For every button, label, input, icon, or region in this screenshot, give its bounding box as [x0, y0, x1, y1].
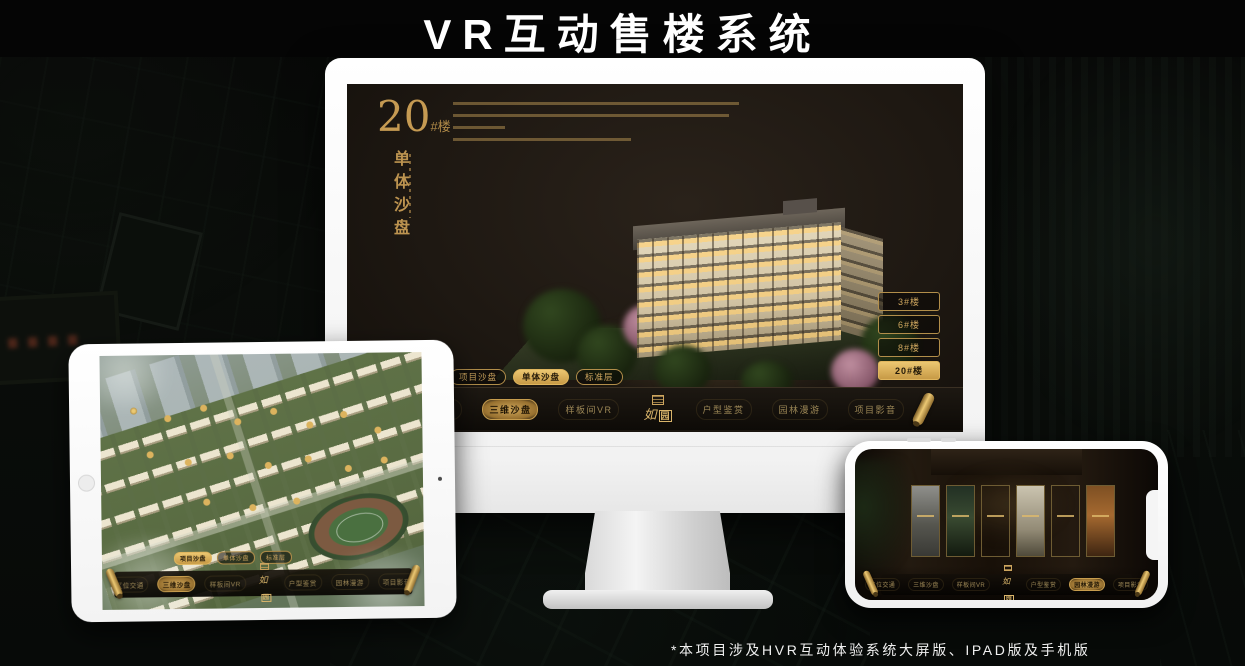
logo-seal-icon — [1004, 565, 1012, 571]
scroll-handle-icon[interactable] — [911, 391, 936, 426]
floor-button-20[interactable]: 20#楼 — [878, 361, 940, 380]
tablet-tab-single-sandtable[interactable]: 单体沙盘 — [217, 551, 255, 564]
building-number: 20 — [377, 92, 430, 141]
tablet-bottom-nav: 区位交通 三维沙盘 样板间VR 如园 户型鉴赏 园林漫游 项目影音 — [114, 568, 412, 598]
building-number-title: 20#楼 — [377, 96, 451, 138]
phone-nav-item-model-room-vr[interactable]: 样板间VR — [952, 578, 990, 591]
tablet-nav-item-floorplan[interactable]: 户型鉴赏 — [284, 574, 322, 590]
nav-item-floorplan[interactable]: 户型鉴赏 — [696, 399, 752, 420]
nav-item-garden-tour[interactable]: 园林漫游 — [772, 399, 828, 420]
logo-char-yuan: 园 — [261, 594, 271, 602]
phone-nav-item-garden-tour[interactable]: 园林漫游 — [1069, 578, 1105, 591]
monitor-stand — [585, 511, 730, 595]
building-unit: #楼 — [430, 119, 450, 134]
phone-bottom-nav: 区位交通 三维沙盘 样板间VR 如园 户型鉴赏 园林漫游 项目影音 — [881, 574, 1132, 595]
footnote-text: *本项目涉及HVR互动体验系统大屏版、IPAD版及手机版 — [671, 640, 1090, 660]
tablet-mode-tab-group: 项目沙盘 单体沙盘 标准层 — [174, 551, 292, 565]
subtitle-english-ticks — [409, 154, 411, 218]
gallery-panel[interactable] — [1086, 485, 1115, 557]
gallery-panel[interactable] — [946, 485, 975, 557]
tablet-camera-icon — [438, 477, 442, 481]
floor-button-6[interactable]: 6#楼 — [878, 315, 940, 334]
phone-device: 区位交通 三维沙盘 样板间VR 如园 户型鉴赏 园林漫游 项目影音 — [845, 441, 1168, 608]
page-title: VR互动售楼系统 — [0, 1, 1245, 62]
phone-notch — [1146, 490, 1158, 560]
ruyuan-logo[interactable]: 如园 — [643, 395, 671, 423]
interior-foliage — [855, 459, 913, 579]
tab-standard-floor[interactable]: 标准层 — [576, 369, 623, 385]
phone-nav-item-floorplan[interactable]: 户型鉴赏 — [1026, 578, 1062, 591]
phone-screen: 区位交通 三维沙盘 样板间VR 如园 户型鉴赏 园林漫游 项目影音 — [855, 449, 1158, 600]
building-3d-model[interactable] — [515, 156, 910, 401]
screen-subtitle: 单体沙盘 — [387, 150, 411, 242]
phone-volume-button[interactable] — [907, 438, 931, 442]
logo-char-ru: 如 — [643, 408, 656, 423]
phone-power-button[interactable] — [941, 438, 956, 442]
nav-item-model-room-vr[interactable]: 样板间VR — [558, 399, 619, 420]
nav-item-project-media[interactable]: 项目影音 — [848, 399, 904, 420]
phone-ruyuan-logo[interactable]: 如园 — [1002, 565, 1014, 600]
floor-button-3[interactable]: 3#楼 — [878, 292, 940, 311]
gallery-panel[interactable] — [1051, 485, 1080, 557]
logo-seal-icon — [652, 395, 664, 405]
logo-char-ru: 如 — [259, 576, 268, 586]
tablet-nav-item-3d-sandtable[interactable]: 三维沙盘 — [158, 576, 196, 592]
logo-char-yuan: 园 — [659, 410, 672, 422]
logo-char-ru: 如 — [1002, 577, 1010, 586]
tablet-ruyuan-logo[interactable]: 如园 — [259, 563, 272, 603]
phone-nav-item-3d-sandtable[interactable]: 三维沙盘 — [908, 578, 944, 591]
building-number-badges[interactable] — [130, 408, 137, 415]
tab-single-sandtable[interactable]: 单体沙盘 — [513, 369, 569, 385]
tablet-home-button[interactable] — [78, 475, 95, 492]
tab-project-sandtable[interactable]: 项目沙盘 — [450, 369, 506, 385]
logo-seal-icon — [260, 563, 269, 570]
building-facade — [637, 222, 841, 358]
floor-button-group: 3#楼 6#楼 8#楼 20#楼 — [878, 292, 940, 380]
tablet-nav-item-model-room-vr[interactable]: 样板间VR — [205, 575, 246, 592]
nav-item-3d-sandtable[interactable]: 三维沙盘 — [482, 399, 538, 420]
background-aerial-right — [985, 57, 1245, 457]
logo-char-yuan: 园 — [1004, 595, 1014, 600]
background-map-bottomright — [1160, 430, 1245, 666]
promo-canvas: VR互动售楼系统 20#楼 单体沙盘 — [0, 0, 1245, 666]
floor-button-8[interactable]: 8#楼 — [878, 338, 940, 357]
tablet-device: 项目沙盘 单体沙盘 标准层 区位交通 三维沙盘 样板间VR 如园 户型鉴赏 园林… — [68, 340, 456, 623]
gallery-panel[interactable] — [981, 485, 1010, 557]
gallery-panel-strip — [911, 485, 1115, 557]
gallery-panel[interactable] — [911, 485, 940, 557]
gallery-panel[interactable] — [1016, 485, 1045, 557]
description-text-lines — [453, 102, 739, 150]
tablet-tab-project-sandtable[interactable]: 项目沙盘 — [174, 552, 212, 565]
tablet-screen: 项目沙盘 单体沙盘 标准层 区位交通 三维沙盘 样板间VR 如园 户型鉴赏 园林… — [99, 352, 424, 610]
mode-tab-group: 项目沙盘 单体沙盘 标准层 — [450, 369, 623, 385]
tablet-nav-item-garden-tour[interactable]: 园林漫游 — [331, 574, 369, 590]
monitor-base — [543, 590, 773, 609]
